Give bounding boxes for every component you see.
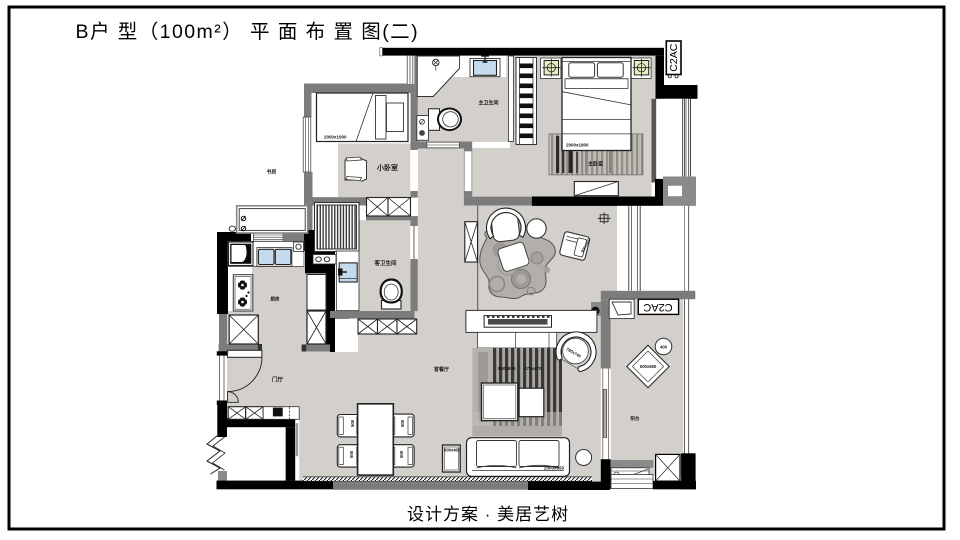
- svg-text:500: 500: [400, 419, 405, 427]
- svg-text:500: 500: [349, 450, 354, 458]
- svg-text:2000x950: 2000x950: [544, 466, 565, 471]
- svg-text:2000x1900: 2000x1900: [566, 143, 589, 148]
- svg-text:500: 500: [399, 450, 404, 458]
- svg-text:470x470: 470x470: [524, 366, 542, 371]
- svg-text:小卧室: 小卧室: [376, 163, 398, 172]
- svg-text:C2AC: C2AC: [668, 43, 680, 71]
- svg-text:600x600: 600x600: [640, 364, 657, 369]
- svg-text:主卧室: 主卧室: [588, 161, 603, 168]
- svg-text:2000x1000: 2000x1000: [324, 135, 347, 140]
- svg-text:设计方案 · 美居艺树: 设计方案 · 美居艺树: [407, 505, 569, 524]
- svg-text:600x400: 600x400: [444, 448, 461, 453]
- svg-text:500: 500: [350, 419, 355, 427]
- svg-text:客餐厅: 客餐厅: [433, 366, 449, 373]
- svg-text:主卫生间: 主卫生间: [479, 100, 499, 107]
- svg-text:阳台: 阳台: [631, 415, 640, 422]
- svg-text:门厅: 门厅: [272, 376, 284, 384]
- svg-text:书房: 书房: [267, 169, 277, 176]
- svg-text:800x800: 800x800: [498, 366, 516, 371]
- svg-text:B户 型（100m²） 平 面 布 置 图(二): B户 型（100m²） 平 面 布 置 图(二): [76, 21, 420, 43]
- svg-text:厨房: 厨房: [271, 296, 280, 303]
- svg-text:400: 400: [660, 345, 668, 350]
- svg-text:C2AC: C2AC: [643, 301, 672, 313]
- svg-text:客卫生间: 客卫生间: [374, 259, 398, 267]
